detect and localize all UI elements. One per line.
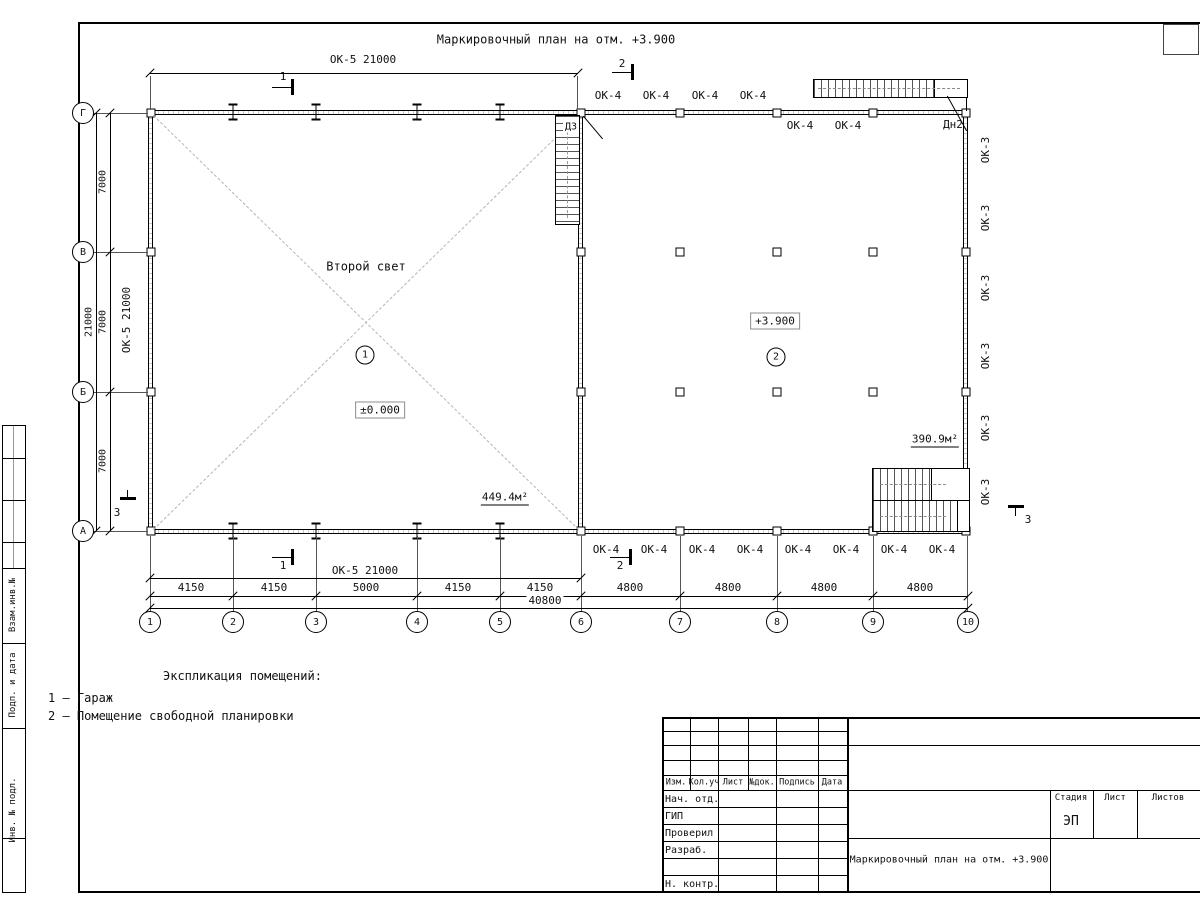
titleblock-line <box>718 717 719 893</box>
steel-column-symbol <box>312 104 321 121</box>
column-marker <box>962 388 971 397</box>
room-tag-2: 2 <box>767 348 786 367</box>
room-note-second-light: Второй свет <box>326 260 405 273</box>
grid-leader <box>93 531 148 532</box>
column-marker <box>869 388 878 397</box>
level-mark-garage: ±0.000 <box>355 402 405 419</box>
section-flag <box>291 549 294 565</box>
column-marker <box>676 388 685 397</box>
grid-bubble-number: 4 <box>406 611 428 633</box>
dim-line-top <box>150 73 578 74</box>
section-mark-1-bottom: 1 <box>280 560 287 572</box>
titleblock-row-nkontr: Н. контр. <box>665 879 719 890</box>
stamp-label-podp: Подп. и дата <box>9 652 19 717</box>
window-mark-ok3: ОК-3 <box>980 275 992 302</box>
plan-title: Маркировочный план на отм. +3.900 <box>437 33 675 46</box>
window-mark-ok4: ОК-4 <box>929 544 956 556</box>
window-mark-ok4: ОК-4 <box>643 90 670 102</box>
area-label-garage: 449.4м² <box>481 491 529 506</box>
dim-text-4150: 4150 <box>443 582 474 594</box>
section-flag <box>120 497 136 500</box>
grid-leader <box>93 113 148 114</box>
window-mark-ok4: ОК-4 <box>785 544 812 556</box>
grid-bubble-number: 3 <box>305 611 327 633</box>
stamp-divider <box>2 425 26 426</box>
titleblock-line <box>662 824 848 825</box>
extension-line <box>967 536 968 614</box>
stamp-divider <box>2 892 26 893</box>
titleblock-line <box>776 717 777 893</box>
titleblock-col-koluch: Кол.уч <box>689 778 720 787</box>
titleblock-line <box>1137 790 1138 838</box>
stamp-column-inner-line <box>13 425 14 568</box>
drawing-sheet: Взам.инв.№ Подп. и дата Инв. № подл. Мар… <box>0 0 1200 900</box>
grid-bubble-number: 8 <box>766 611 788 633</box>
grid-leader <box>93 392 148 393</box>
extension-line <box>777 536 778 614</box>
section-line <box>610 557 630 558</box>
column-marker <box>773 527 782 536</box>
steel-column-symbol <box>229 104 238 121</box>
frame-left <box>78 22 80 892</box>
grid-bubble-letter: Г <box>72 102 94 124</box>
grid-bubble-number: 2 <box>222 611 244 633</box>
stamp-column-left-line <box>2 425 3 893</box>
stair-mid-line <box>872 500 970 501</box>
section-line <box>272 87 292 88</box>
titleblock-row-proveril: Проверил <box>665 828 713 839</box>
dim-text-4150: 4150 <box>259 582 290 594</box>
titleblock-col-list: Лист <box>723 778 743 787</box>
grid-bubble-number: 5 <box>489 611 511 633</box>
legend-item: 1 – Гараж <box>48 692 113 705</box>
section-mark-2-top: 2 <box>619 58 626 70</box>
titleblock-col-podpis: Подпись <box>779 778 815 787</box>
titleblock-col-izm: Изм. <box>666 778 686 787</box>
titleblock-stage-label: Стадия <box>1055 794 1088 804</box>
frame-bottom <box>78 891 1200 893</box>
window-mark-ok3: ОК-3 <box>980 205 992 232</box>
titleblock-line <box>662 807 848 808</box>
window-mark-ok4: ОК-4 <box>881 544 908 556</box>
stamp-divider <box>2 643 26 644</box>
door-leaf-d3 <box>583 116 603 140</box>
dim-text-4150: 4150 <box>525 582 556 594</box>
section-flag <box>1008 505 1024 508</box>
section-flag <box>631 64 634 80</box>
extension-line <box>417 536 418 614</box>
grid-bubble-number: 10 <box>957 611 979 633</box>
wall-top-left <box>148 110 583 115</box>
section-line <box>612 72 632 73</box>
titleblock-row-razrab: Разраб. <box>665 845 707 856</box>
dim-text-7000: 7000 <box>98 447 109 475</box>
column-marker <box>773 388 782 397</box>
window-mark-ok3: ОК-3 <box>980 415 992 442</box>
extension-line <box>873 536 874 614</box>
dim-line-left-chain <box>110 113 111 531</box>
titleblock-row-nach-otd: Нач. отд. <box>665 794 719 805</box>
frame-top <box>78 22 1200 24</box>
window-mark-ok4: ОК-4 <box>689 544 716 556</box>
window-mark-ok4: ОК-4 <box>787 120 814 132</box>
window-mark-ok3: ОК-3 <box>980 137 992 164</box>
dim-text-4800: 4800 <box>615 582 646 594</box>
stamp-divider <box>2 728 26 729</box>
dim-text-4800: 4800 <box>905 582 936 594</box>
titleblock-sheets-label: Листов <box>1152 794 1185 804</box>
column-marker <box>676 109 685 118</box>
titleblock-border <box>662 717 664 893</box>
window-mark-ok3: ОК-3 <box>980 479 992 506</box>
grid-bubble-number: 6 <box>570 611 592 633</box>
dim-text-ok5-bottom: ОК-5 21000 <box>330 565 400 577</box>
extension-line <box>316 536 317 614</box>
titleblock-line <box>662 841 848 842</box>
extension-line <box>577 76 578 110</box>
section-mark-3-right: 3 <box>1025 514 1032 526</box>
steel-column-symbol <box>413 104 422 121</box>
stair-walk-line <box>880 484 946 485</box>
dim-text-5000: 5000 <box>351 582 382 594</box>
area-label-open-plan: 390.9м² <box>911 433 959 448</box>
grid-bubble-number: 7 <box>669 611 691 633</box>
window-mark-ok4: ОК-4 <box>595 90 622 102</box>
dim-text-21000: 21000 <box>84 305 95 339</box>
window-mark-ok4: ОК-4 <box>737 544 764 556</box>
stamp-divider <box>2 458 26 459</box>
stair-walk-line <box>567 122 568 218</box>
grid-bubble-letter: Б <box>72 381 94 403</box>
section-mark-2-bottom: 2 <box>617 560 624 572</box>
section-flag <box>291 79 294 95</box>
extension-line <box>233 536 234 614</box>
section-line <box>127 490 128 498</box>
section-line <box>272 557 292 558</box>
titleblock-line <box>662 858 848 859</box>
titleblock-line <box>1093 790 1094 838</box>
stair-walk-line <box>818 88 960 89</box>
grid-bubble-number: 1 <box>139 611 161 633</box>
dim-text-ok5-top: ОК-5 21000 <box>328 54 398 66</box>
stair-walk-line <box>880 516 946 517</box>
column-marker <box>962 248 971 257</box>
window-mark-ok4: ОК-4 <box>835 120 862 132</box>
dim-line-overall-bottom <box>150 608 968 609</box>
dim-text-4800: 4800 <box>713 582 744 594</box>
dim-text-4800: 4800 <box>809 582 840 594</box>
exterior-stair-wall <box>966 98 967 111</box>
wall-bottom <box>148 529 968 534</box>
stamp-label-inv: Инв. № подл. <box>9 777 19 842</box>
legend-heading: Экспликация помещений: <box>163 670 322 683</box>
grid-bubble-number: 9 <box>862 611 884 633</box>
window-mark-ok4: ОК-4 <box>593 544 620 556</box>
stamp-divider <box>2 568 26 569</box>
window-mark-ok4: ОК-4 <box>641 544 668 556</box>
titleblock-line <box>662 790 848 791</box>
grid-bubble-letter: В <box>72 241 94 263</box>
titleblock-line <box>848 838 1200 839</box>
dim-text-ok5-left: ОК-5 21000 <box>121 285 133 355</box>
column-marker <box>773 248 782 257</box>
grid-bubble-letter: А <box>72 520 94 542</box>
dim-line-ok5-bottom <box>150 578 581 579</box>
titleblock-col-data: Дата <box>822 778 842 787</box>
titleblock-line <box>1050 790 1051 893</box>
stamp-divider <box>2 542 26 543</box>
dim-text-7000: 7000 <box>98 168 109 196</box>
door-mark-d3: Д3 <box>563 122 579 133</box>
section-line <box>1015 508 1016 516</box>
titleblock-line <box>818 717 819 893</box>
titleblock-col-ndok: №док. <box>749 778 775 787</box>
column-marker <box>869 109 878 118</box>
window-mark-ok4: ОК-4 <box>833 544 860 556</box>
zone-box <box>1163 24 1199 55</box>
titleblock-line <box>662 875 848 876</box>
stamp-column-right-line <box>25 425 26 893</box>
column-marker <box>773 109 782 118</box>
window-mark-ok3: ОК-3 <box>980 343 992 370</box>
level-mark-open-plan: +3.900 <box>750 313 800 330</box>
steel-column-symbol <box>496 104 505 121</box>
column-marker <box>577 248 586 257</box>
titleblock-row-gip: ГИП <box>665 811 683 822</box>
door-mark-dn2: Дн2 <box>943 119 963 131</box>
titleblock-border <box>662 717 1200 719</box>
window-mark-ok4: ОК-4 <box>692 90 719 102</box>
titleblock-stage-value: ЭП <box>1063 815 1079 829</box>
window-mark-ok4: ОК-4 <box>740 90 767 102</box>
section-flag <box>629 549 632 565</box>
titleblock-line <box>848 745 1200 746</box>
dim-text-40800: 40800 <box>526 595 563 607</box>
legend-item: 2 – Помещение свободной планировки <box>48 710 294 723</box>
stamp-divider <box>2 500 26 501</box>
stamp-label-vzam: Взам.инв.№ <box>9 578 19 632</box>
grid-leader <box>93 252 148 253</box>
extension-line <box>150 76 151 110</box>
column-marker <box>676 527 685 536</box>
column-marker <box>869 248 878 257</box>
extension-line <box>680 536 681 614</box>
wall-left <box>148 110 153 534</box>
extension-line <box>500 536 501 614</box>
titleblock-border <box>847 717 849 893</box>
dim-text-4150: 4150 <box>176 582 207 594</box>
column-marker <box>577 388 586 397</box>
dim-text-7000: 7000 <box>98 308 109 336</box>
room-tag-1: 1 <box>356 346 375 365</box>
titleblock-line <box>848 790 1200 791</box>
section-mark-3-left: 3 <box>114 507 121 519</box>
column-marker <box>676 248 685 257</box>
titleblock-sheet-label: Лист <box>1104 794 1126 804</box>
titleblock-doc-title: Маркировочный план на отм. +3.900 <box>850 855 1049 866</box>
